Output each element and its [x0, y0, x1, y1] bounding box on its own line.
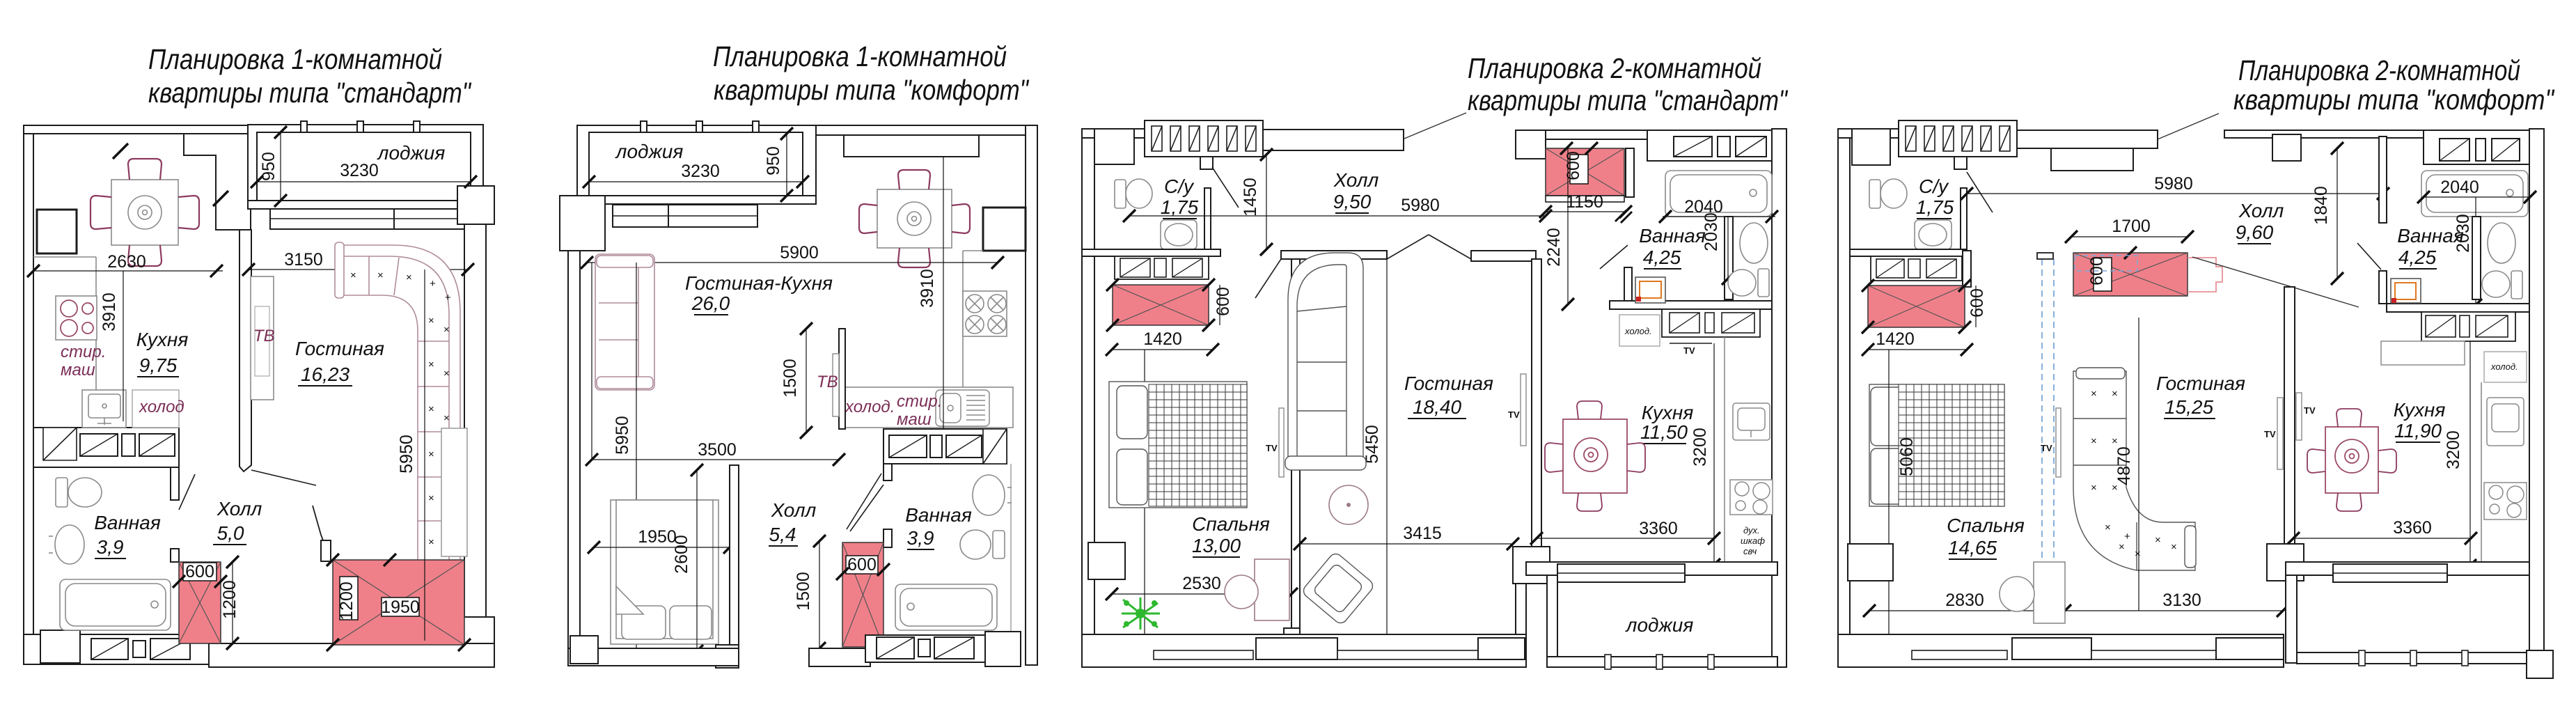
- svg-text:×: ×: [2119, 541, 2125, 553]
- svg-text:2030: 2030: [2453, 214, 2473, 253]
- svg-text:15,25: 15,25: [2165, 396, 2213, 418]
- svg-text:3360: 3360: [1639, 519, 1678, 538]
- svg-text:5980: 5980: [2154, 174, 2193, 194]
- svg-text:маш: маш: [897, 410, 932, 429]
- svg-text:2240: 2240: [1544, 228, 1564, 267]
- svg-text:3200: 3200: [2444, 430, 2463, 469]
- svg-text:квартиры типа "стандарт": квартиры типа "стандарт": [1468, 84, 1789, 116]
- svg-text:холод.: холод.: [2490, 361, 2518, 372]
- svg-text:1,75: 1,75: [1161, 196, 1199, 218]
- svg-text:×: ×: [443, 324, 450, 336]
- svg-text:С/у: С/у: [1919, 175, 1949, 197]
- svg-text:Ванная: Ванная: [94, 512, 161, 533]
- svg-text:Кухня: Кухня: [2394, 399, 2446, 421]
- svg-text:Холл: Холл: [771, 499, 817, 521]
- svg-text:×: ×: [2091, 435, 2097, 447]
- svg-text:3910: 3910: [918, 269, 937, 308]
- svg-text:С/у: С/у: [1164, 175, 1195, 197]
- svg-text:600: 600: [185, 562, 214, 581]
- svg-text:Планировка 2-комнатной: Планировка 2-комнатной: [2238, 54, 2520, 86]
- svg-text:лоджия: лоджия: [377, 142, 446, 164]
- svg-text:ТВ: ТВ: [253, 327, 275, 345]
- svg-text:стир.: стир.: [897, 392, 942, 411]
- svg-text:Гостиная: Гостиная: [1404, 373, 1493, 394]
- svg-text:холод.: холод.: [845, 398, 895, 416]
- svg-text:5,0: 5,0: [217, 522, 244, 544]
- svg-text:×: ×: [2112, 388, 2118, 400]
- svg-text:TV: TV: [2304, 405, 2316, 416]
- svg-text:5950: 5950: [613, 416, 632, 455]
- svg-text:1150: 1150: [1566, 192, 1603, 212]
- svg-text:×: ×: [428, 492, 434, 504]
- svg-text:1950: 1950: [381, 597, 420, 617]
- svg-text:TV: TV: [1266, 443, 1278, 453]
- svg-text:Ванная: Ванная: [1639, 225, 1706, 247]
- svg-text:1,75: 1,75: [1916, 196, 1954, 218]
- svg-text:3150: 3150: [284, 250, 323, 269]
- svg-text:маш: маш: [61, 361, 95, 380]
- svg-text:600: 600: [1564, 151, 1583, 180]
- svg-text:×: ×: [443, 368, 450, 380]
- svg-text:1450: 1450: [1241, 178, 1260, 217]
- svg-text:4,25: 4,25: [2398, 247, 2437, 268]
- svg-text:Спальня: Спальня: [1947, 515, 2025, 536]
- svg-text:3,9: 3,9: [907, 527, 934, 549]
- svg-text:дух.: дух.: [1743, 525, 1760, 536]
- svg-text:26,0: 26,0: [691, 292, 730, 314]
- svg-text:×: ×: [350, 269, 356, 281]
- svg-text:3910: 3910: [100, 292, 119, 331]
- svg-text:лоджия: лоджия: [1625, 614, 1694, 636]
- svg-text:×: ×: [2155, 534, 2161, 546]
- svg-text:2530: 2530: [1182, 574, 1221, 593]
- svg-text:3415: 3415: [1403, 524, 1442, 543]
- svg-text:+: +: [430, 278, 436, 290]
- svg-text:3130: 3130: [2162, 591, 2201, 610]
- svg-text:4,25: 4,25: [1643, 247, 1681, 268]
- svg-text:2630: 2630: [107, 252, 146, 272]
- svg-text:Гостиная-Кухня: Гостиная-Кухня: [685, 272, 833, 294]
- svg-text:950: 950: [764, 146, 783, 175]
- svg-text:Кухня: Кухня: [1642, 402, 1694, 423]
- svg-text:Гостиная: Гостиная: [2156, 373, 2245, 394]
- svg-text:2830: 2830: [1945, 591, 1984, 610]
- svg-text:Гостиная: Гостиная: [295, 338, 384, 359]
- svg-text:TV: TV: [2041, 443, 2052, 453]
- svg-text:×: ×: [428, 403, 434, 415]
- svg-text:600: 600: [847, 555, 877, 575]
- svg-text:11,90: 11,90: [2394, 420, 2442, 442]
- svg-text:лоджия: лоджия: [615, 141, 684, 162]
- svg-text:5950: 5950: [397, 435, 416, 474]
- svg-text:3500: 3500: [698, 440, 737, 460]
- svg-text:2600: 2600: [672, 535, 691, 574]
- svg-text:5980: 5980: [1401, 196, 1440, 215]
- svg-text:шкаф: шкаф: [1741, 536, 1765, 546]
- svg-text:9,75: 9,75: [139, 354, 178, 376]
- svg-text:18,40: 18,40: [1413, 396, 1461, 418]
- svg-text:квартиры типа "стандарт": квартиры типа "стандарт": [148, 77, 472, 109]
- svg-text:4870: 4870: [2114, 446, 2134, 485]
- svg-text:3,9: 3,9: [97, 536, 124, 558]
- svg-text:1950: 1950: [638, 527, 677, 547]
- svg-text:×: ×: [428, 359, 434, 370]
- svg-text:1700: 1700: [2112, 217, 2151, 236]
- svg-text:×: ×: [2112, 435, 2118, 447]
- svg-text:13,00: 13,00: [1192, 535, 1241, 556]
- svg-text:600: 600: [1214, 287, 1233, 316]
- svg-text:2030: 2030: [1702, 212, 1721, 251]
- svg-text:квартиры типа "комфорт": квартиры типа "комфорт": [714, 74, 1030, 106]
- svg-text:+: +: [2124, 531, 2130, 542]
- svg-text:×: ×: [377, 269, 384, 281]
- svg-text:TV: TV: [2264, 429, 2276, 439]
- svg-text:3230: 3230: [340, 161, 379, 180]
- svg-text:5,4: 5,4: [769, 524, 796, 545]
- svg-text:×: ×: [443, 412, 450, 424]
- svg-text:3230: 3230: [681, 162, 720, 181]
- svg-text:×: ×: [428, 315, 434, 327]
- svg-text:1500: 1500: [780, 359, 800, 398]
- svg-text:1840: 1840: [2311, 186, 2331, 225]
- svg-text:×: ×: [406, 272, 412, 283]
- svg-text:Холл: Холл: [217, 498, 262, 519]
- svg-text:×: ×: [428, 536, 434, 548]
- svg-text:16,23: 16,23: [301, 364, 350, 385]
- svg-text:×: ×: [2171, 541, 2177, 553]
- svg-text:холод: холод: [139, 398, 184, 416]
- svg-text:×: ×: [2091, 482, 2097, 494]
- svg-text:Планировка 2-комнатной: Планировка 2-комнатной: [1468, 52, 1761, 84]
- svg-text:Спальня: Спальня: [1192, 513, 1270, 535]
- svg-text:Планировка 1-комнатной: Планировка 1-комнатной: [148, 43, 442, 75]
- svg-text:TV: TV: [1683, 345, 1695, 356]
- svg-text:ТВ: ТВ: [817, 373, 838, 391]
- svg-text:Планировка 1-комнатной: Планировка 1-комнатной: [713, 40, 1007, 72]
- svg-text:1420: 1420: [1143, 329, 1182, 349]
- svg-text:свч: свч: [1743, 546, 1757, 556]
- svg-text:Холл: Холл: [1333, 169, 1379, 191]
- svg-text:Холл: Холл: [2238, 200, 2284, 221]
- svg-text:5060: 5060: [1897, 437, 1917, 476]
- svg-text:1200: 1200: [220, 580, 239, 619]
- svg-text:9,50: 9,50: [1333, 191, 1372, 212]
- svg-text:2040: 2040: [2440, 178, 2479, 197]
- svg-text:9,60: 9,60: [2236, 221, 2274, 243]
- svg-text:11,50: 11,50: [1640, 421, 1688, 443]
- svg-text:квартиры типа "комфорт": квартиры типа "комфорт": [2233, 84, 2555, 116]
- svg-text:×: ×: [2105, 522, 2111, 533]
- svg-text:3360: 3360: [2393, 518, 2432, 538]
- svg-text:×: ×: [428, 448, 434, 460]
- svg-text:Ванная: Ванная: [905, 504, 972, 526]
- svg-text:стир.: стир.: [61, 343, 106, 361]
- svg-text:5450: 5450: [1362, 425, 1382, 464]
- svg-text:3200: 3200: [1690, 428, 1710, 467]
- svg-text:1420: 1420: [1876, 329, 1915, 349]
- svg-text:+: +: [445, 292, 451, 304]
- svg-text:холод.: холод.: [1624, 326, 1652, 336]
- svg-text:×: ×: [2135, 548, 2141, 560]
- svg-text:×: ×: [2091, 388, 2097, 400]
- svg-text:14,65: 14,65: [1948, 537, 1997, 558]
- svg-text:1200: 1200: [337, 581, 356, 620]
- svg-text:600: 600: [1968, 288, 1987, 318]
- svg-text:5900: 5900: [780, 243, 819, 263]
- svg-text:1500: 1500: [794, 572, 813, 611]
- svg-text:TV: TV: [1508, 409, 1520, 420]
- svg-text:Кухня: Кухня: [136, 329, 189, 350]
